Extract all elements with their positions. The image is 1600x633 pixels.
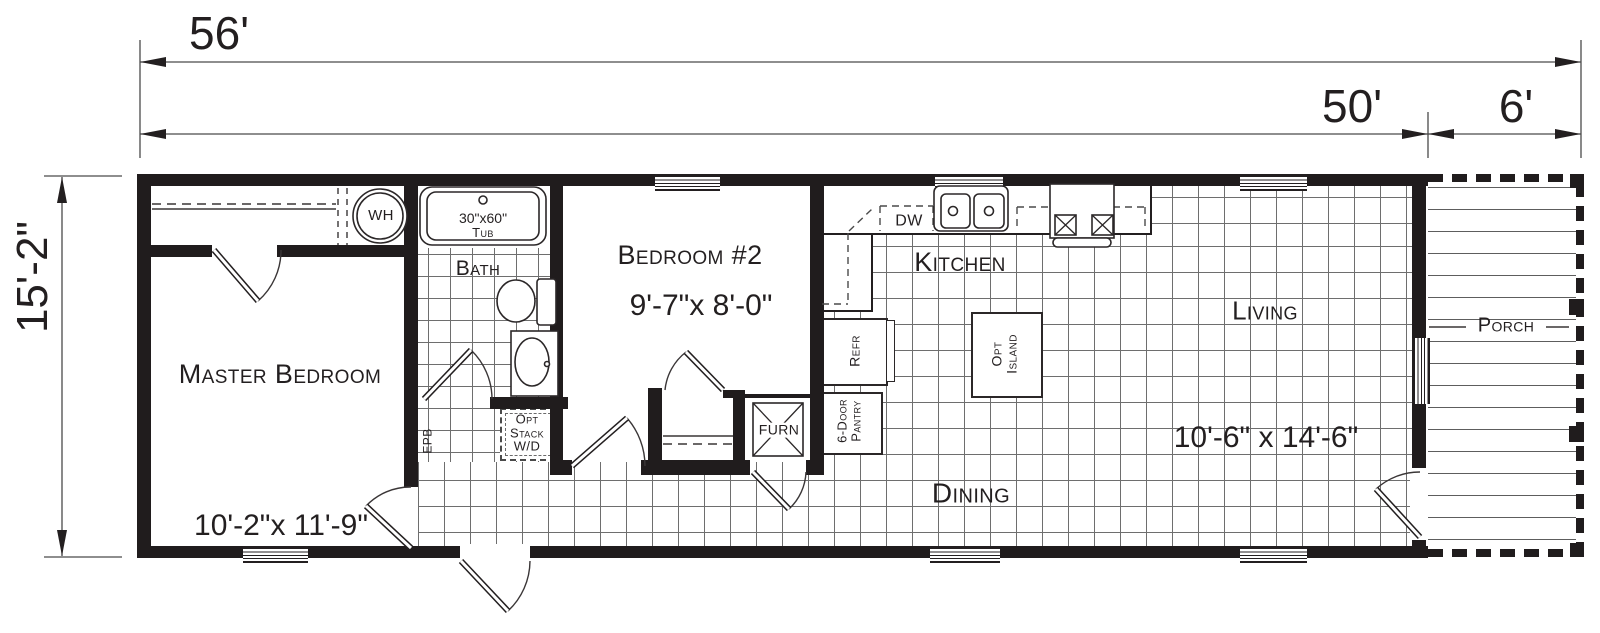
label-electrical-panel: EPB xyxy=(421,428,434,453)
room-label-master-bedroom: Master Bedroom xyxy=(179,360,381,388)
bedroom2-door-arc xyxy=(627,418,645,466)
room-label-bath: Bath xyxy=(456,258,501,280)
label-opt-island: Opt Island xyxy=(990,334,1021,374)
label-washer-dryer: Opt Stack W/D xyxy=(510,413,544,454)
room-label-bedroom2: Bedroom #2 xyxy=(617,241,762,269)
rear-door-arc xyxy=(508,561,530,611)
dim-porch-length: 6' xyxy=(1499,79,1533,133)
room-size-master-bedroom: 10'-2"x 11'-9" xyxy=(194,509,368,543)
dim-main-length: 50' xyxy=(1322,79,1382,133)
label-dishwasher: DW xyxy=(895,214,922,231)
wh-closet-partition xyxy=(338,188,347,245)
b2-closet-door-arc xyxy=(665,352,686,390)
label-furnace: FURN xyxy=(757,423,801,438)
master-hall-door-arc xyxy=(366,487,411,506)
master-entry-door-arc xyxy=(258,250,281,301)
room-label-kitchen: Kitchen xyxy=(914,248,1006,276)
label-refrigerator: Refr xyxy=(847,335,862,367)
room-label-dining: Dining xyxy=(932,478,1010,507)
room-size-bedroom2: 9'-7"x 8'-0" xyxy=(630,289,773,323)
label-pantry: 6-Door Pantry xyxy=(836,399,865,443)
room-label-living: Living xyxy=(1232,297,1298,324)
dim-overall-length: 56' xyxy=(189,6,249,60)
bath-door-arc xyxy=(471,350,492,399)
dim-width: 15'-2" xyxy=(8,221,58,333)
room-size-living: 10'-6" x 14'-6" xyxy=(1174,421,1359,455)
front-door-arc xyxy=(1376,472,1420,489)
furnace-door-arc xyxy=(789,472,806,509)
label-tub: Tub xyxy=(472,226,494,240)
toilet-tank-icon xyxy=(537,279,556,325)
label-tub-size: 30"x60" xyxy=(459,210,507,226)
oven-handle xyxy=(1053,238,1111,247)
toilet-bowl-icon xyxy=(497,280,535,322)
label-water-heater: WH xyxy=(368,208,394,224)
room-label-porch: Porch xyxy=(1478,316,1535,337)
floor-plan: 56' 50' 6' 15'-2" Master Bedroom 10'-2"x… xyxy=(0,0,1600,633)
